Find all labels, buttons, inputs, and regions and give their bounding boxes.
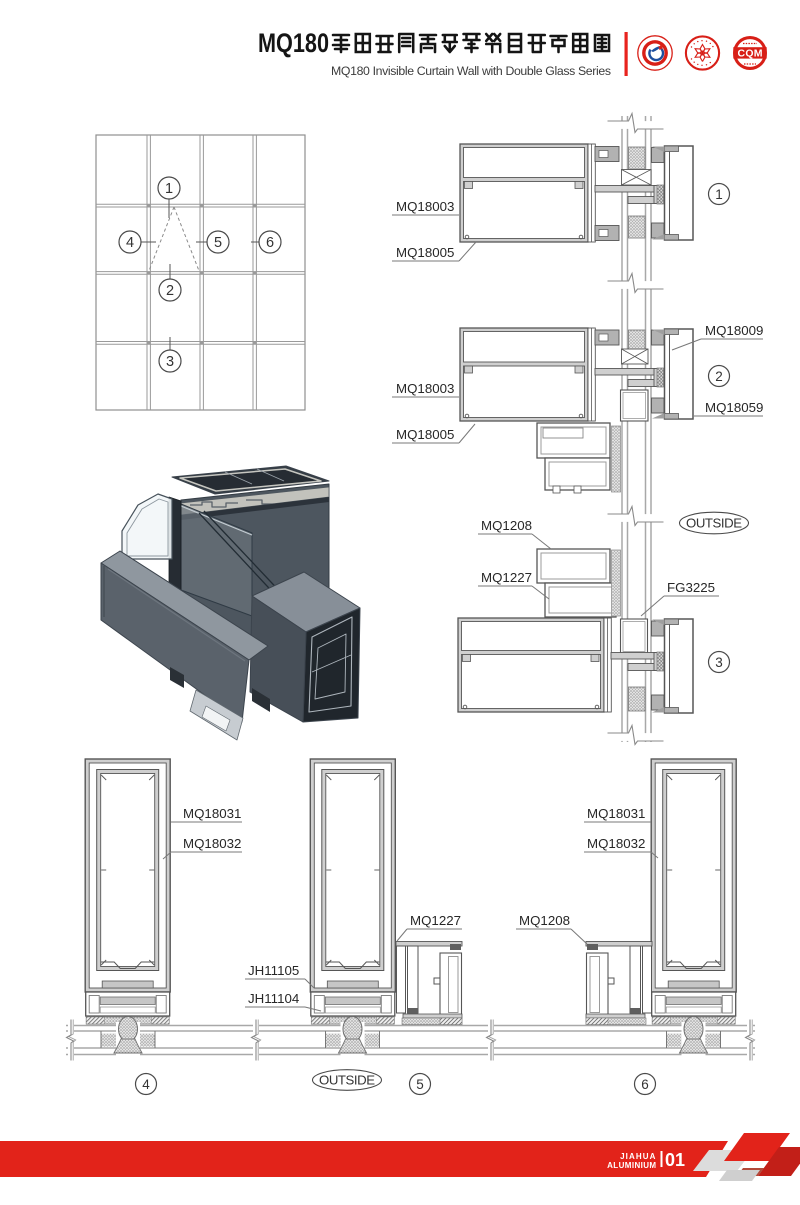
svg-text:2: 2 (166, 283, 174, 299)
svg-text:MQ18003: MQ18003 (396, 199, 454, 214)
svg-text:CQM: CQM (738, 48, 763, 60)
svg-text:2: 2 (715, 369, 723, 384)
svg-text:6: 6 (641, 1077, 649, 1092)
svg-text:MQ18032: MQ18032 (183, 836, 241, 851)
svg-text:1: 1 (715, 187, 723, 202)
svg-text:6: 6 (266, 235, 274, 251)
svg-text:5: 5 (214, 235, 222, 251)
svg-text:5: 5 (416, 1077, 424, 1092)
svg-text:JIAHUA: JIAHUA (620, 1152, 656, 1161)
svg-text:MQ18031: MQ18031 (587, 806, 645, 821)
svg-text:1: 1 (165, 181, 173, 197)
svg-text:MQ18032: MQ18032 (587, 836, 645, 851)
svg-text:MQ18005: MQ18005 (396, 245, 454, 260)
svg-text:3: 3 (715, 655, 723, 670)
svg-text:MQ18059: MQ18059 (705, 400, 763, 415)
svg-text:MQ1227: MQ1227 (410, 913, 461, 928)
svg-text:MQ18009: MQ18009 (705, 323, 763, 338)
svg-text:MQ1227: MQ1227 (481, 570, 532, 585)
svg-text:MQ18005: MQ18005 (396, 427, 454, 442)
svg-text:MQ1208: MQ1208 (519, 913, 570, 928)
svg-text:OUTSIDE: OUTSIDE (319, 1073, 375, 1088)
svg-text:MQ1208: MQ1208 (481, 518, 532, 533)
svg-text:ALUMINIUM: ALUMINIUM (607, 1161, 656, 1170)
svg-text:4: 4 (142, 1077, 150, 1092)
svg-text:MQ180 Invisible Curtain Wal: MQ180 Invisible Curtain Wall with Double… (331, 64, 611, 78)
svg-text:MQ180: MQ180 (258, 28, 329, 58)
svg-text:JH11104: JH11104 (248, 991, 299, 1006)
svg-text:MQ18031: MQ18031 (183, 806, 241, 821)
svg-text:01: 01 (665, 1150, 685, 1170)
svg-text:MQ18003: MQ18003 (396, 381, 454, 396)
svg-text:FG3225: FG3225 (667, 580, 715, 595)
svg-text:JH11105: JH11105 (248, 963, 299, 978)
svg-text:OUTSIDE: OUTSIDE (686, 516, 742, 531)
svg-text:3: 3 (166, 354, 174, 370)
svg-text:4: 4 (126, 235, 134, 251)
